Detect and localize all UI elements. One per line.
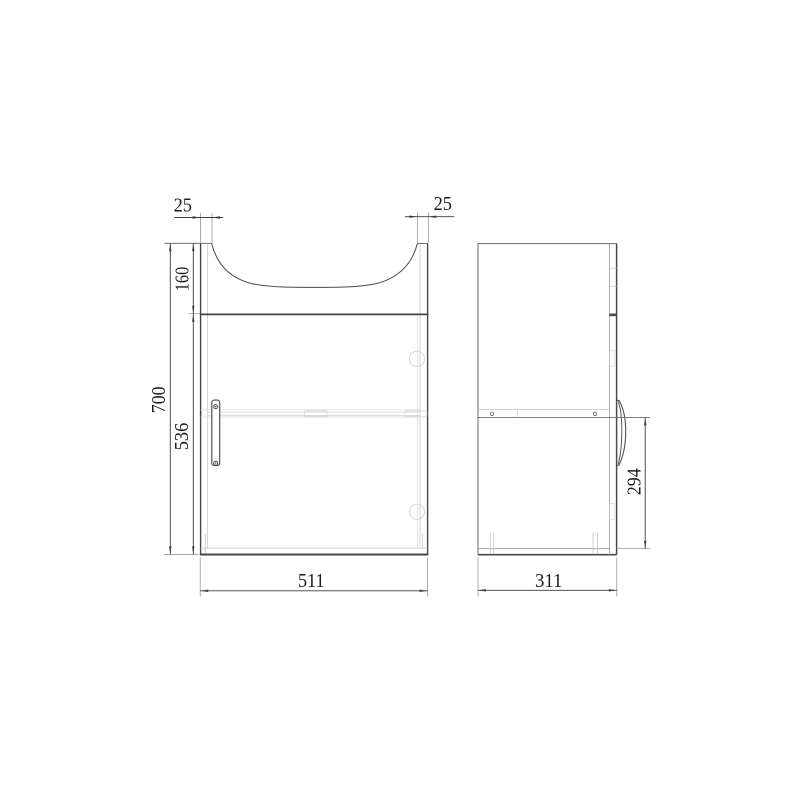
svg-text:511: 511 xyxy=(298,570,325,592)
svg-text:700: 700 xyxy=(148,386,170,413)
svg-text:25: 25 xyxy=(434,193,452,215)
svg-text:294: 294 xyxy=(624,468,646,495)
svg-text:311: 311 xyxy=(535,570,563,592)
svg-text:25: 25 xyxy=(174,195,192,217)
svg-text:536: 536 xyxy=(171,423,193,451)
svg-text:160: 160 xyxy=(172,267,194,292)
